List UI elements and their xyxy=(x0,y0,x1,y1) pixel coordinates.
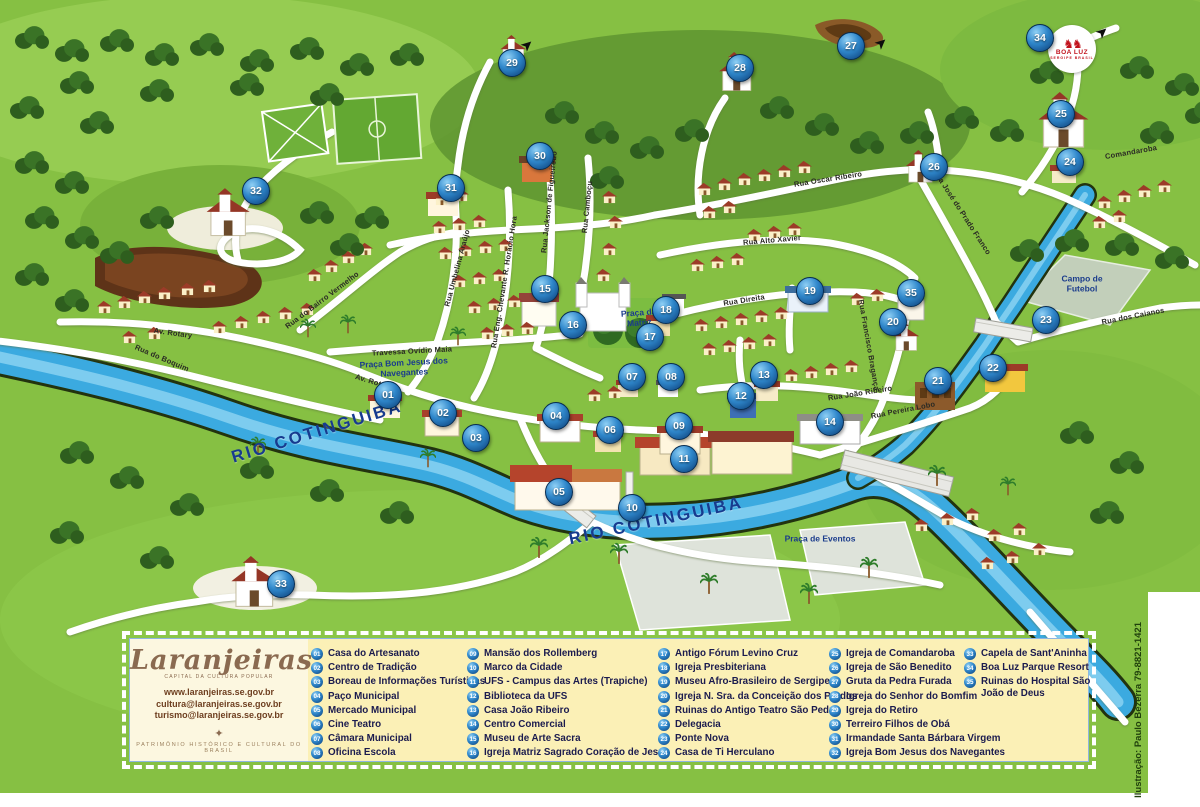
email-turismo-link[interactable]: turismo@laranjeiras.se.gov.br xyxy=(130,710,308,722)
legend-label-32: Igreja Bom Jesus dos Navegantes xyxy=(846,747,1005,759)
legend-number-26: 26 xyxy=(829,662,841,674)
legend-label-02: Centro de Tradição xyxy=(328,662,417,674)
legend-label-14: Centro Comercial xyxy=(484,719,566,731)
legend-item-03: 03Boreau de Informações Turísticas xyxy=(311,676,485,690)
legend-label-04: Paço Municipal xyxy=(328,691,399,703)
legend-number-32: 32 xyxy=(829,747,841,759)
legend-column-5: 33Capela de Sant'Aninha34Boa Luz Parque … xyxy=(964,648,1093,700)
map-marker-02[interactable]: 02 xyxy=(429,399,457,427)
legend-item-13: 13Casa João Ribeiro xyxy=(467,705,670,719)
legend-number-09: 09 xyxy=(467,648,479,660)
legend-label-08: Oficina Escola xyxy=(328,747,396,759)
boa-luz-name: BOA LUZ xyxy=(1056,49,1088,56)
legend-number-23: 23 xyxy=(658,733,670,745)
legend-label-07: Câmara Municipal xyxy=(328,733,412,745)
legend-number-25: 25 xyxy=(829,648,841,660)
legend-number-28: 28 xyxy=(829,691,841,703)
map-marker-18[interactable]: 18 xyxy=(652,296,680,324)
legend-label-19: Museu Afro-Brasileiro de Sergipe xyxy=(675,676,830,688)
legend-item-29: 29Igreja do Retiro xyxy=(829,705,1005,719)
legend-item-05: 05Mercado Municipal xyxy=(311,705,485,719)
email-cultura-link[interactable]: cultura@laranjeiras.se.gov.br xyxy=(130,699,308,711)
legend-number-11: 11 xyxy=(467,676,479,688)
legend-label-24: Casa de Ti Herculano xyxy=(675,747,774,759)
legend-label-28: Igreja do Senhor do Bomfim xyxy=(846,691,977,703)
map-marker-30[interactable]: 30 xyxy=(526,142,554,170)
legend-panel: Laranjeiras CAPITAL DA CULTURA POPULAR w… xyxy=(129,638,1089,762)
legend-number-08: 08 xyxy=(311,747,323,759)
area-label-4: Praça de Eventos xyxy=(750,534,890,544)
map-marker-19[interactable]: 19 xyxy=(796,277,824,305)
legend-number-06: 06 xyxy=(311,719,323,731)
map-marker-03[interactable]: 03 xyxy=(462,424,490,452)
legend-item-14: 14Centro Comercial xyxy=(467,719,670,733)
legend-label-12: Biblioteca da UFS xyxy=(484,691,567,703)
boa-luz-subtitle: SERGIPE BRASIL xyxy=(1050,56,1094,60)
legend-item-20: 20Igreja N. Sra. da Conceição dos Pardos xyxy=(658,691,857,705)
map-marker-32[interactable]: 32 xyxy=(242,177,270,205)
legend-label-35: Ruinas do Hospital São João de Deus xyxy=(981,676,1093,700)
legend-item-35: 35Ruinas do Hospital São João de Deus xyxy=(964,676,1093,700)
city-logo: Laranjeiras xyxy=(130,645,308,676)
map-marker-17[interactable]: 17 xyxy=(636,323,664,351)
legend-item-23: 23Ponte Nova xyxy=(658,733,857,747)
legend-item-19: 19Museu Afro-Brasileiro de Sergipe xyxy=(658,676,857,690)
boa-luz-logo: ♞♞ BOA LUZ SERGIPE BRASIL xyxy=(1048,25,1096,73)
legend-item-30: 30Terreiro Filhos de Obá xyxy=(829,719,1005,733)
legend-logo-block: Laranjeiras CAPITAL DA CULTURA POPULAR w… xyxy=(130,639,308,761)
legend-item-31: 31Irmandade Santa Bárbara Virgem xyxy=(829,733,1005,747)
legend-number-07: 07 xyxy=(311,733,323,745)
map-marker-06[interactable]: 06 xyxy=(596,416,624,444)
map-marker-26[interactable]: 26 xyxy=(920,153,948,181)
legend-number-20: 20 xyxy=(658,691,670,703)
map-marker-29[interactable]: 29 xyxy=(498,49,526,77)
map-marker-35[interactable]: 35 xyxy=(897,279,925,307)
map-marker-10[interactable]: 10 xyxy=(618,494,646,522)
map-marker-20[interactable]: 20 xyxy=(879,308,907,336)
legend-number-12: 12 xyxy=(467,691,479,703)
legend-number-10: 10 xyxy=(467,662,479,674)
legend-label-15: Museu de Arte Sacra xyxy=(484,733,581,745)
compass-icon: ✦ xyxy=(130,727,308,740)
map-marker-28[interactable]: 28 xyxy=(726,54,754,82)
legend-number-15: 15 xyxy=(467,733,479,745)
legend-number-13: 13 xyxy=(467,705,479,717)
legend-number-27: 27 xyxy=(829,676,841,688)
legend-number-33: 33 xyxy=(964,648,976,660)
map-marker-24[interactable]: 24 xyxy=(1056,148,1084,176)
legend-number-14: 14 xyxy=(467,719,479,731)
legend-label-03: Boreau de Informações Turísticas xyxy=(328,676,485,688)
legend-label-30: Terreiro Filhos de Obá xyxy=(846,719,950,731)
tourist-map: .y .body{fill:#F3C73F;} xyxy=(0,0,1200,807)
legend-label-22: Delegacia xyxy=(675,719,721,731)
legend-number-22: 22 xyxy=(658,719,670,731)
legend-item-11: 11UFS - Campus das Artes (Trapiche) xyxy=(467,676,670,690)
legend-item-07: 07Câmara Municipal xyxy=(311,733,485,747)
legend-label-26: Igreja de São Benedito xyxy=(846,662,952,674)
legend-label-13: Casa João Ribeiro xyxy=(484,705,569,717)
illustration-credit: Ilustração: Paulo Bezerra 79-8821-1421 xyxy=(1133,622,1144,798)
map-marker-14[interactable]: 14 xyxy=(816,408,844,436)
legend-label-10: Marco da Cidade xyxy=(484,662,562,674)
legend-item-33: 33Capela de Sant'Aninha xyxy=(964,648,1093,662)
map-marker-08[interactable]: 08 xyxy=(657,363,685,391)
map-marker-27[interactable]: 27 xyxy=(837,32,865,60)
legend-item-24: 24Casa de Ti Herculano xyxy=(658,747,857,761)
legend-label-18: Igreja Presbiteriana xyxy=(675,662,766,674)
legend-label-17: Antigo Fórum Levino Cruz xyxy=(675,648,798,660)
legend-number-18: 18 xyxy=(658,662,670,674)
map-marker-09[interactable]: 09 xyxy=(665,412,693,440)
legend-number-29: 29 xyxy=(829,705,841,717)
legend-label-23: Ponte Nova xyxy=(675,733,729,745)
legend-item-32: 32Igreja Bom Jesus dos Navegantes xyxy=(829,747,1005,761)
legend-label-33: Capela de Sant'Aninha xyxy=(981,648,1093,660)
legend-number-02: 02 xyxy=(311,662,323,674)
legend-number-16: 16 xyxy=(467,747,479,759)
legend-column-2: 09Mansão dos Rollemberg10Marco da Cidade… xyxy=(467,648,670,762)
legend-item-21: 21Ruinas do Antigo Teatro São Pedro xyxy=(658,705,857,719)
legend: Laranjeiras CAPITAL DA CULTURA POPULAR w… xyxy=(122,631,1096,769)
map-marker-05[interactable]: 05 xyxy=(545,478,573,506)
map-marker-13[interactable]: 13 xyxy=(750,361,778,389)
legend-label-11: UFS - Campus das Artes (Trapiche) xyxy=(484,676,648,688)
legend-number-24: 24 xyxy=(658,747,670,759)
legend-label-34: Boa Luz Parque Resort xyxy=(981,662,1093,674)
legend-item-01: 01Casa do Artesanato xyxy=(311,648,485,662)
map-marker-01[interactable]: 01 xyxy=(374,381,402,409)
legend-number-04: 04 xyxy=(311,691,323,703)
map-marker-21[interactable]: 21 xyxy=(924,367,952,395)
legend-number-19: 19 xyxy=(658,676,670,688)
legend-number-17: 17 xyxy=(658,648,670,660)
area-label-5: Campo de Futebol xyxy=(1049,275,1115,294)
legend-item-15: 15Museu de Arte Sacra xyxy=(467,733,670,747)
map-marker-04[interactable]: 04 xyxy=(542,402,570,430)
legend-label-05: Mercado Municipal xyxy=(328,705,416,717)
legend-number-35: 35 xyxy=(964,676,976,688)
legend-item-34: 34Boa Luz Parque Resort xyxy=(964,662,1093,676)
boa-luz-horses-icon: ♞♞ xyxy=(1063,39,1081,49)
map-marker-34[interactable]: 34 xyxy=(1026,24,1054,52)
legend-item-09: 09Mansão dos Rollemberg xyxy=(467,648,670,662)
map-marker-33[interactable]: 33 xyxy=(267,570,295,598)
map-marker-07[interactable]: 07 xyxy=(618,363,646,391)
legend-number-03: 03 xyxy=(311,676,323,688)
map-marker-16[interactable]: 16 xyxy=(559,311,587,339)
legend-item-02: 02Centro de Tradição xyxy=(311,662,485,676)
legend-column-3: 17Antigo Fórum Levino Cruz18Igreja Presb… xyxy=(658,648,857,762)
map-marker-22[interactable]: 22 xyxy=(979,354,1007,382)
legend-label-27: Gruta da Pedra Furada xyxy=(846,676,952,688)
legend-item-10: 10Marco da Cidade xyxy=(467,662,670,676)
legend-label-01: Casa do Artesanato xyxy=(328,648,420,660)
map-marker-25[interactable]: 25 xyxy=(1047,100,1075,128)
legend-label-16: Igreja Matriz Sagrado Coração de Jesus xyxy=(484,747,670,759)
legend-item-12: 12Biblioteca da UFS xyxy=(467,691,670,705)
legend-label-31: Irmandade Santa Bárbara Virgem xyxy=(846,733,1000,745)
legend-item-17: 17Antigo Fórum Levino Cruz xyxy=(658,648,857,662)
legend-label-06: Cine Teatro xyxy=(328,719,381,731)
legend-number-31: 31 xyxy=(829,733,841,745)
map-marker-11[interactable]: 11 xyxy=(670,445,698,473)
map-marker-12[interactable]: 12 xyxy=(727,382,755,410)
legend-item-18: 18Igreja Presbiteriana xyxy=(658,662,857,676)
legend-label-29: Igreja do Retiro xyxy=(846,705,918,717)
page-margin xyxy=(1148,592,1200,807)
legend-number-05: 05 xyxy=(311,705,323,717)
website-link[interactable]: www.laranjeiras.se.gov.br xyxy=(130,687,308,699)
map-marker-23[interactable]: 23 xyxy=(1032,306,1060,334)
legend-number-21: 21 xyxy=(658,705,670,717)
legend-label-25: Igreja de Comandaroba xyxy=(846,648,955,660)
page-margin xyxy=(0,793,1200,807)
legend-item-06: 06Cine Teatro xyxy=(311,719,485,733)
legend-label-21: Ruinas do Antigo Teatro São Pedro xyxy=(675,705,839,717)
legend-item-04: 04Paço Municipal xyxy=(311,691,485,705)
legend-column-1: 01Casa do Artesanato02Centro de Tradição… xyxy=(311,648,485,762)
heritage-caption: PATRIMÔNIO HISTÓRICO E CULTURAL DO BRASI… xyxy=(130,742,308,754)
map-marker-31[interactable]: 31 xyxy=(437,174,465,202)
legend-number-34: 34 xyxy=(964,662,976,674)
map-marker-15[interactable]: 15 xyxy=(531,275,559,303)
legend-number-01: 01 xyxy=(311,648,323,660)
legend-item-22: 22Delegacia xyxy=(658,719,857,733)
legend-number-30: 30 xyxy=(829,719,841,731)
legend-item-16: 16Igreja Matriz Sagrado Coração de Jesus xyxy=(467,747,670,761)
legend-item-08: 08Oficina Escola xyxy=(311,747,485,761)
legend-label-09: Mansão dos Rollemberg xyxy=(484,648,597,660)
